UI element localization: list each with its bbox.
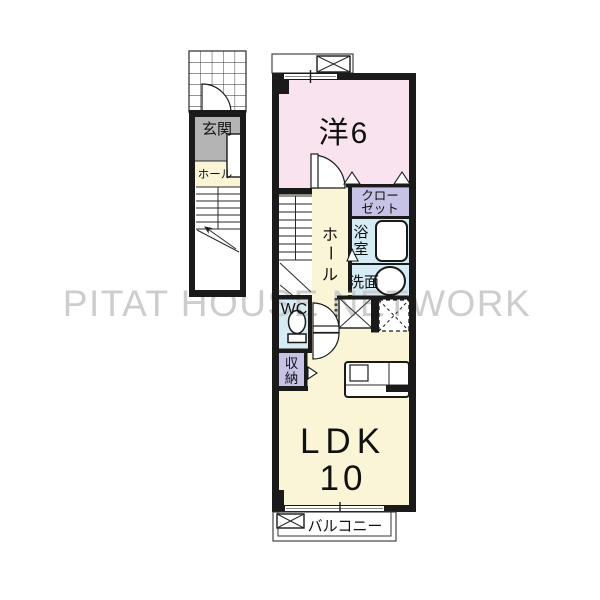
closet-label-line1: クロー [361, 189, 399, 203]
wall-segment [279, 349, 312, 354]
balcony-label: バルコニー [308, 518, 383, 535]
corner-pillar [272, 490, 284, 506]
wall-segment [189, 110, 246, 117]
toilet-tank-icon [288, 334, 306, 343]
wall-segment [352, 263, 409, 265]
storage-label-char2: 納 [285, 371, 299, 386]
bathtub-icon [376, 221, 407, 261]
floor-plan-canvas: 玄関 ホール [0, 0, 600, 600]
hall-2f-label-char2: ー [321, 245, 338, 261]
entrance-label: 玄関 [202, 121, 232, 138]
western-room-label: 洋6 [319, 117, 370, 150]
watermark-text: PITAT HOUSE NETWORK [63, 283, 531, 324]
storage-label-char1: 収 [285, 356, 299, 371]
closet-label-line2: ゼット [361, 202, 399, 216]
wall-segment [189, 110, 195, 297]
hall-2f-label-char3: ル [322, 267, 338, 284]
wall-segment [304, 353, 308, 386]
ldk-label-line2: 10 [320, 459, 367, 498]
wall-segment [240, 110, 246, 297]
bathroom-label-char1: 浴 [353, 224, 368, 241]
western-room-door-leaf [311, 154, 318, 188]
balcony: バルコニー [273, 512, 396, 541]
wall-segment [352, 216, 409, 219]
left-wing: 玄関 ホール [189, 51, 246, 297]
stairs-left-break-line [197, 230, 239, 252]
kitchen-range-block [386, 385, 409, 392]
stairs-direction-arrow-icon [205, 227, 236, 249]
ldk-label-line1: LDK [300, 422, 386, 461]
bathroom-label-char2: 室 [353, 241, 368, 258]
wall-segment [279, 188, 312, 195]
hall-2f-label-char1: ホ [322, 227, 338, 244]
floor-plan-svg: 玄関 ホール [0, 0, 600, 600]
corridor-door-leaf [313, 326, 339, 333]
kitchen-sink-icon [350, 365, 368, 381]
hall-1f-label: ホール [198, 168, 233, 181]
